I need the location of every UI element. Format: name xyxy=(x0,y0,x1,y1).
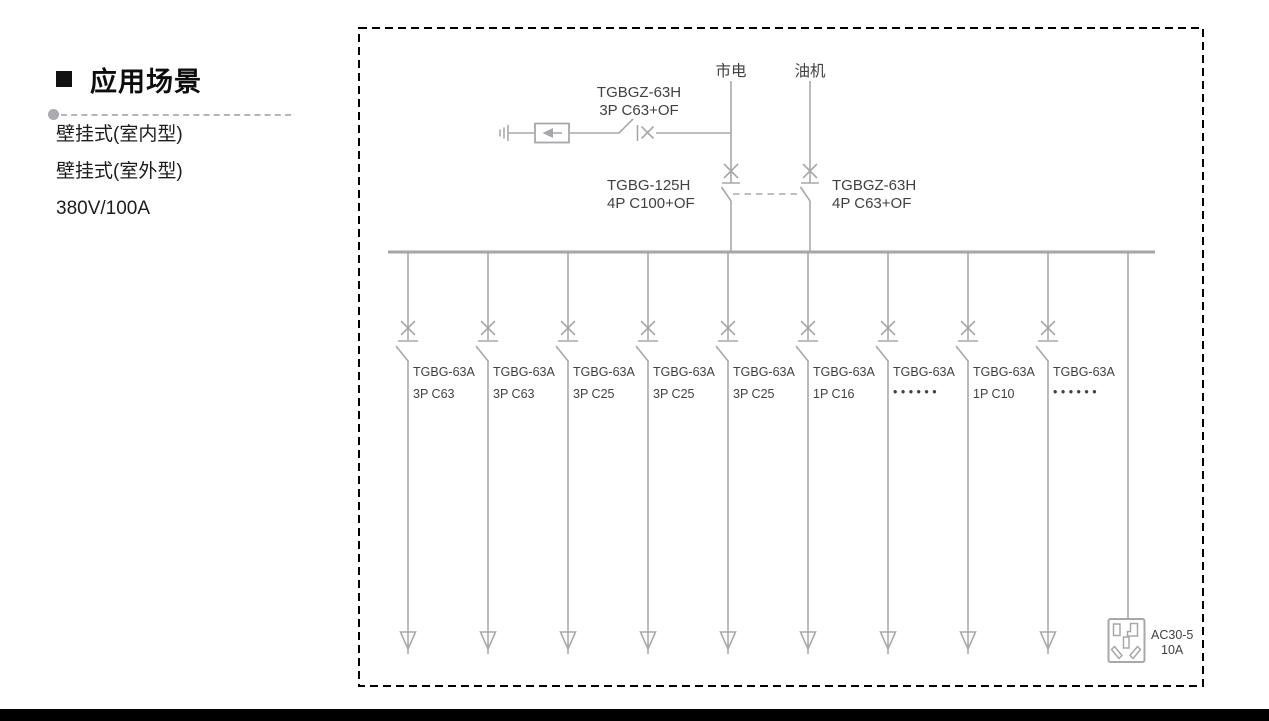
feeder-6: TGBG-63A 1P C16 xyxy=(796,252,875,654)
feeder-8: TGBG-63A 1P C10 xyxy=(956,252,1035,654)
bottom-divider-bar xyxy=(0,709,1269,721)
feeder-model-label: TGBG-63A xyxy=(973,365,1035,379)
generator-breaker-spec-label: 4P C63+OF xyxy=(832,195,911,212)
mains-breaker-model-label: TGBG-125H xyxy=(607,177,690,194)
spd-branch: TGBGZ-63H 3P C63+OF xyxy=(500,84,731,143)
feeder-spec-label: 3P C25 xyxy=(573,387,615,401)
feeder-7: TGBG-63A • • • • • • xyxy=(876,252,955,654)
mains-source-label: 市电 xyxy=(715,62,746,80)
feeder-spec-label: 3P C63 xyxy=(413,387,455,401)
mains-incoming: 市电 xyxy=(715,62,746,252)
feeder-spec-label: 3P C25 xyxy=(733,387,775,401)
feeder-breaker-icon xyxy=(1036,252,1058,654)
spd-breaker-model-label: TGBGZ-63H xyxy=(597,84,681,101)
feeder-model-label: TGBG-63A xyxy=(413,365,475,379)
socket-model-label: AC30-5 xyxy=(1151,628,1193,642)
feeder-breaker-icon xyxy=(476,252,498,654)
mains-breaker-spec-label: 4P C100+OF xyxy=(607,195,695,212)
surge-arrester-icon xyxy=(535,124,569,143)
socket-rating-label: 10A xyxy=(1161,643,1184,657)
feeder-spec-label: 1P C10 xyxy=(973,387,1015,401)
feeder-spec-label: • • • • • • xyxy=(893,385,937,399)
feeder-breaker-icon xyxy=(716,252,738,654)
feeder-3: TGBG-63A 3P C25 xyxy=(556,252,635,654)
feeder-spec-label: 3P C25 xyxy=(653,387,695,401)
socket-branch: AC30-5 10A xyxy=(1109,252,1194,662)
generator-breaker-model-label: TGBGZ-63H xyxy=(832,177,916,194)
feeder-5: TGBG-63A 3P C25 xyxy=(716,252,795,654)
feeder-breaker-icon xyxy=(396,252,418,654)
socket-icon xyxy=(1109,619,1145,662)
feeder-breaker-icon xyxy=(876,252,898,654)
generator-source-label: 油机 xyxy=(794,62,826,80)
feeder-model-label: TGBG-63A xyxy=(893,365,955,379)
feeder-breaker-icon xyxy=(556,252,578,654)
feeder-model-label: TGBG-63A xyxy=(813,365,875,379)
feeder-4: TGBG-63A 3P C25 xyxy=(636,252,715,654)
feeder-9: TGBG-63A • • • • • • xyxy=(1036,252,1115,654)
feeder-1: TGBG-63A 3P C63 xyxy=(396,252,475,654)
feeder-model-label: TGBG-63A xyxy=(733,365,795,379)
ground-icon xyxy=(500,125,508,141)
feeder-model-label: TGBG-63A xyxy=(573,365,635,379)
feeder-model-label: TGBG-63A xyxy=(653,365,715,379)
page: 应用场景 壁挂式(室内型) 壁挂式(室外型) 380V/100A xyxy=(0,0,1269,721)
feeder-spec-label: 1P C16 xyxy=(813,387,855,401)
feeder-spec-label: • • • • • • xyxy=(1053,385,1097,399)
spd-breaker-spec-label: 3P C63+OF xyxy=(599,102,678,119)
mains-breaker-icon xyxy=(722,81,741,252)
single-line-diagram: 市电 油机 xyxy=(0,0,1269,721)
generator-incoming: 油机 xyxy=(794,62,826,252)
feeder-breaker-icon xyxy=(636,252,658,654)
generator-breaker-icon xyxy=(801,81,820,252)
spd-breaker-icon xyxy=(619,119,654,141)
feeder-breaker-icon xyxy=(956,252,978,654)
feeder-model-label: TGBG-63A xyxy=(1053,365,1115,379)
feeder-model-label: TGBG-63A xyxy=(493,365,555,379)
feeder-2: TGBG-63A 3P C63 xyxy=(476,252,555,654)
feeder-spec-label: 3P C63 xyxy=(493,387,535,401)
feeder-breaker-icon xyxy=(796,252,818,654)
